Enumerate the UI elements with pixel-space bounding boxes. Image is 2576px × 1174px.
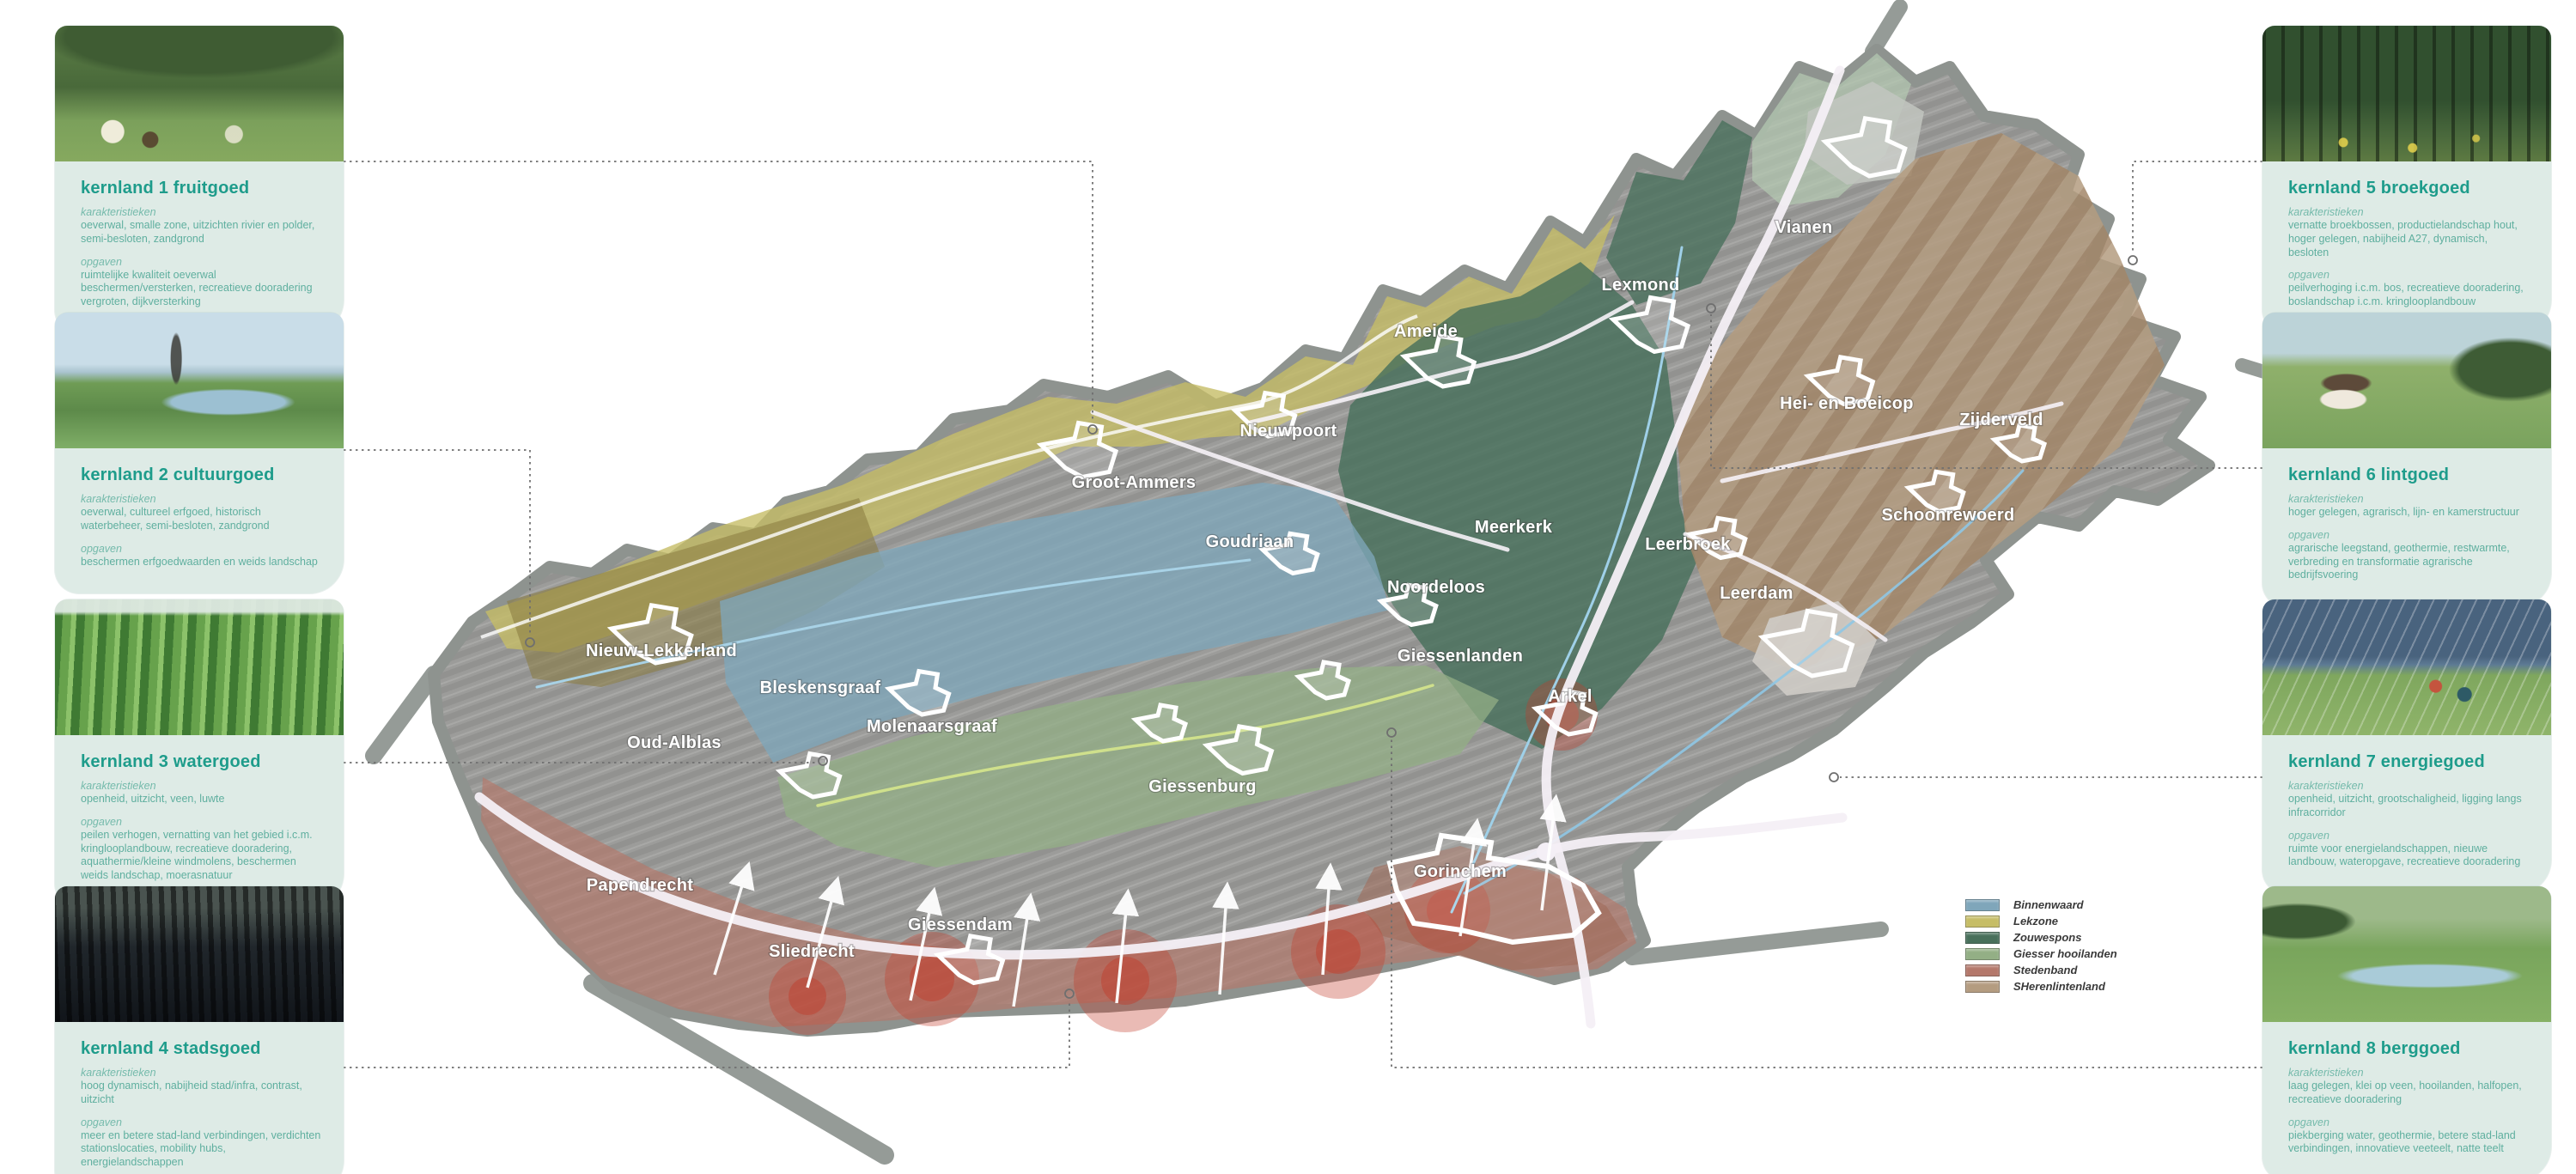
town-label-schoonrewoerd: Schoonrewoerd [1881,506,2014,525]
legend-label: Stedenband [2013,964,2077,976]
town-label-sliedrecht: Sliedrecht [769,942,855,961]
card-title: kernland 8 berggoed [2288,1039,2529,1058]
legend-item-sherenlintenland: SHerenlintenland [1965,980,2117,993]
card-title: kernland 7 energiegoed [2288,752,2529,771]
legend-swatch [1965,915,2000,928]
legend-swatch [1965,899,2000,911]
town-label-gorinchem: Gorinchem [1414,862,1507,881]
legend-list: BinnenwaardLekzoneZouwesponsGiesser hooi… [1965,898,2117,993]
windmill-landscape-photo [55,313,344,448]
region-map: VianenLexmondAmeideHei- en BoeicopZijder… [0,0,2576,1174]
town-label-lexmond: Lexmond [1602,276,1680,295]
town-label-leerdam: Leerdam [1720,584,1793,603]
legend-swatch [1965,964,2000,976]
card-kernland-2: kernland 2 cultuurgoed karakteristieken … [55,313,344,593]
tasks-text: meer en betere stad-land verbindingen, v… [81,1129,321,1170]
legend-label: Binnenwaard [2013,898,2084,911]
town-label-papendrecht: Papendrecht [587,876,693,895]
town-label-ameide: Ameide [1394,322,1458,341]
solar-field-picnic-photo [2262,599,2551,735]
characteristics-label: karakteristieken [81,1067,321,1079]
characteristics-label: karakteristieken [2288,493,2529,505]
meadow-stream-photo [2262,886,2551,1022]
legend-item-stedenband: Stedenband [1965,964,2117,976]
legend-swatch [1965,932,2000,944]
town-label-leerbroek: Leerbroek [1645,535,1731,554]
tasks-label: opgaven [81,1116,321,1128]
card-kernland-6: kernland 6 lintgoed karakteristieken hog… [2262,313,2551,607]
town-label-bleskensgraaf: Bleskensgraaf [760,678,881,697]
town-label-noordeloos: Noordeloos [1387,578,1485,597]
tasks-label: opgaven [81,543,321,555]
card-kernland-8: kernland 8 berggoed karakteristieken laa… [2262,886,2551,1174]
legend-label: Giesser hooilanden [2013,947,2117,960]
card-kernland-7: kernland 7 energiegoed karakteristieken … [2262,599,2551,894]
characteristics-label: karakteristieken [81,780,321,792]
characteristics-text: laag gelegen, klei op veen, hooilanden, … [2288,1080,2529,1107]
tasks-text: peilen verhogen, vernatting van het gebi… [81,829,321,883]
tasks-text: ruimte voor energielandschappen, nieuwe … [2288,842,2529,870]
card-kernland-5: kernland 5 broekgoed karakteristieken ve… [2262,26,2551,334]
tasks-label: opgaven [2288,1116,2529,1128]
town-label-meerkerk: Meerkerk [1475,518,1553,537]
characteristics-text: hoger gelegen, agrarisch, lijn- en kamer… [2288,506,2529,520]
town-label-groot-ammers: Groot-Ammers [1072,473,1197,492]
card-kernland-1: kernland 1 fruitgoed karakteristieken oe… [55,26,344,334]
legend-item-lekzone: Lekzone [1965,915,2117,928]
legend-item-zouwespons: Zouwespons [1965,931,2117,944]
tasks-text: piekberging water, geothermie, betere st… [2288,1129,2529,1157]
legend-item-binnenwaard: Binnenwaard [1965,898,2117,911]
characteristics-label: karakteristieken [81,206,321,218]
characteristics-text: hoog dynamisch, nabijheid stad/infra, co… [81,1080,321,1107]
town-label-molenaarsgraaf: Molenaarsgraaf [867,717,997,736]
town-label-oud-alblas: Oud-Alblas [627,733,722,752]
card-title: kernland 2 cultuurgoed [81,465,321,484]
legend-label: Lekzone [2013,915,2058,928]
town-label-arkel: Arkel [1548,687,1592,706]
wet-crop-rows-photo [55,599,344,735]
characteristics-label: karakteristieken [2288,780,2529,792]
card-title: kernland 4 stadsgoed [81,1039,321,1058]
infographic-canvas: VianenLexmondAmeideHei- en BoeicopZijder… [0,0,2576,1174]
town-label-zijderveld: Zijderveld [1959,411,2043,429]
legend-label: SHerenlintenland [2013,980,2105,993]
town-label-nieuwpoort: Nieuwpoort [1240,422,1337,441]
characteristics-text: oeverwal, smalle zone, uitzichten rivier… [81,219,321,246]
tasks-label: opgaven [2288,269,2529,281]
characteristics-text: oeverwal, cultureel erfgoed, historisch … [81,506,321,533]
town-label-giessendam: Giessendam [908,915,1013,934]
town-label-goudriaan: Goudriaan [1206,532,1294,551]
card-title: kernland 3 watergoed [81,752,321,771]
legend-item-giesser: Giesser hooilanden [1965,947,2117,960]
tasks-text: ruimtelijke kwaliteit oeverwal bescherme… [81,269,321,309]
bicycle-parking-photo [55,886,344,1022]
town-label-giessenlanden: Giessenlanden [1398,647,1523,666]
town-label-vianen: Vianen [1775,218,1832,237]
swamp-forest-photo [2262,26,2551,161]
card-title: kernland 5 broekgoed [2288,179,2529,198]
tasks-label: opgaven [81,256,321,268]
tasks-text: beschermen erfgoedwaarden en weids lands… [81,556,321,569]
map-legend: BinnenwaardLekzoneZouwesponsGiesser hooi… [1965,898,2117,996]
tasks-label: opgaven [81,816,321,828]
card-title: kernland 6 lintgoed [2288,465,2529,484]
characteristics-text: openheid, uitzicht, veen, luwte [81,793,321,806]
characteristics-label: karakteristieken [2288,1067,2529,1079]
tasks-label: opgaven [2288,529,2529,541]
characteristics-label: karakteristieken [2288,206,2529,218]
legend-label: Zouwespons [2013,931,2081,944]
card-kernland-3: kernland 3 watergoed karakteristieken op… [55,599,344,908]
orchard-cows-photo [55,26,344,161]
town-label-hei-en-boeicop: Hei- en Boeicop [1780,394,1914,413]
card-kernland-4: kernland 4 stadsgoed karakteristieken ho… [55,886,344,1174]
town-label-nieuw-lekkerland: Nieuw-Lekkerland [586,642,737,660]
characteristics-text: openheid, uitzicht, grootschaligheid, li… [2288,793,2529,820]
characteristics-label: karakteristieken [81,493,321,505]
legend-swatch [1965,948,2000,960]
tasks-label: opgaven [2288,830,2529,842]
tasks-text: agrarische leegstand, geothermie, restwa… [2288,542,2529,582]
card-title: kernland 1 fruitgoed [81,179,321,198]
tasks-text: peilverhoging i.c.m. bos, recreatieve do… [2288,282,2529,309]
town-label-giessenburg: Giessenburg [1148,777,1257,796]
legend-swatch [1965,981,2000,993]
farmstead-photo [2262,313,2551,448]
characteristics-text: vernatte broekbossen, productielandschap… [2288,219,2529,259]
